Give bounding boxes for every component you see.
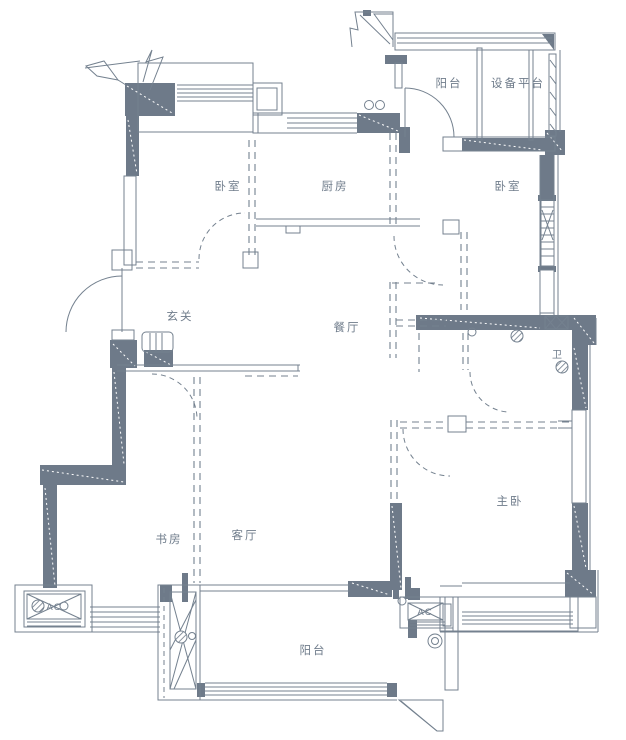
floor-plan-page: 卧室 厨房 阳台 设备平台 卧室 玄关 餐厅 卫 书房 客厅 主卧 阳台 AC … bbox=[0, 0, 626, 740]
room-label-entry: 玄关 bbox=[167, 309, 194, 323]
bedroom-right-door-arc bbox=[394, 236, 443, 285]
entry-door-arc bbox=[66, 276, 122, 332]
room-label-bath: 卫 bbox=[552, 350, 562, 361]
room-label-dining: 餐厅 bbox=[334, 320, 361, 334]
room-label-kitchen: 厨房 bbox=[322, 180, 349, 193]
pipe-icon bbox=[189, 633, 196, 640]
rain-pipe-icon bbox=[432, 638, 439, 645]
room-label-equipment-platform: 设备平台 bbox=[491, 76, 545, 90]
pipe-icon bbox=[398, 597, 406, 605]
room-label-balcony-bottom: 阳台 bbox=[300, 643, 327, 657]
ac-label-right: AC bbox=[417, 607, 432, 618]
master-door-arc bbox=[403, 429, 450, 476]
fixtures bbox=[15, 101, 568, 649]
floor-drain-icon bbox=[556, 361, 568, 373]
floor-plan-canvas: 卧室 厨房 阳台 设备平台 卧室 玄关 餐厅 卫 书房 客厅 主卧 阳台 AC … bbox=[0, 0, 626, 740]
bath-door-arc bbox=[470, 372, 510, 412]
floor-drain-icon bbox=[175, 631, 187, 643]
balcony-top-door-arc bbox=[405, 88, 454, 137]
rain-pipe-icon bbox=[428, 634, 442, 648]
room-label-study: 书房 bbox=[156, 533, 183, 546]
room-label-bedroom-right: 卧室 bbox=[495, 179, 522, 193]
gas-pipe-icon bbox=[365, 101, 374, 110]
gas-pipe-icon bbox=[376, 101, 385, 110]
wall-outlines bbox=[15, 12, 598, 731]
study-door-arc bbox=[152, 374, 197, 419]
room-label-balcony-top: 阳台 bbox=[436, 76, 463, 90]
bedroom-left-door-arc bbox=[199, 213, 245, 259]
ac-label-left: AC bbox=[46, 602, 61, 613]
room-label-bedroom-left: 卧室 bbox=[215, 179, 242, 193]
room-label-living: 客厅 bbox=[232, 528, 259, 542]
floor-drain-icon bbox=[511, 330, 523, 342]
windows bbox=[177, 85, 357, 128]
partitions bbox=[136, 133, 572, 583]
room-label-master-bedroom: 主卧 bbox=[497, 495, 524, 508]
